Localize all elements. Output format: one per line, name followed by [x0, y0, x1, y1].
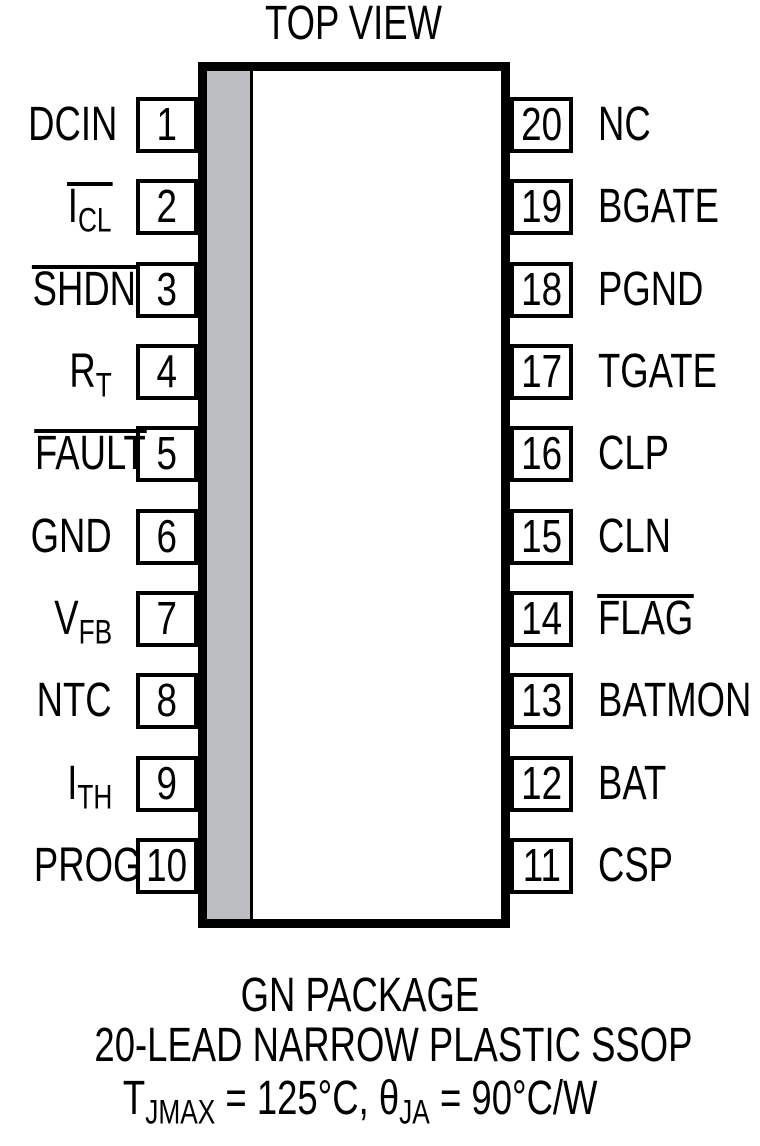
pin-15-number-box: 15 — [510, 509, 573, 565]
pin-20-label-text: NC — [598, 97, 651, 153]
pin-4-signal-name: RT — [70, 345, 112, 398]
pin-9-number: 9 — [157, 760, 177, 807]
pin-16-label-text: CLP — [598, 426, 669, 482]
pin-14-label: FLAG — [598, 591, 759, 647]
pin-17-signal-name: TGATE — [598, 345, 717, 398]
pinout-diagram: TOP VIEW 1DCIN2ICL3SHDN4RT5FAULT6GND7VFB… — [0, 0, 760, 1146]
pin-8-base-text: NTC — [37, 674, 112, 727]
pin-12-number-box: 12 — [510, 756, 573, 812]
pin-14-number: 14 — [521, 595, 562, 642]
pin-8-label-text: NTC — [37, 673, 112, 729]
pin-7-number: 7 — [157, 595, 177, 642]
pin-11-number-box: 11 — [510, 838, 573, 894]
pin-11-label-text: CSP — [598, 838, 673, 894]
pin-12-label-text: BAT — [598, 756, 666, 812]
caption-text-segment: T — [123, 1072, 145, 1125]
pin-16-number-box: 16 — [510, 426, 573, 482]
pin-5-signal-name: FAULT — [35, 426, 146, 482]
pin-5-label: FAULT — [0, 426, 112, 482]
caption-subscript: JA — [399, 1093, 430, 1131]
chip-package-body — [198, 62, 510, 928]
pin-20-base-text: NC — [598, 98, 651, 151]
pin-11-base-text: CSP — [598, 839, 673, 892]
pin-17-label-text: TGATE — [598, 344, 717, 400]
pin-14-label-text: FLAG — [598, 591, 693, 647]
pin-18-signal-name: PGND — [598, 263, 703, 316]
pin-3-label: SHDN — [0, 262, 112, 318]
pin-20-number-box: 20 — [510, 97, 573, 153]
pin-9-base-text: I — [67, 757, 77, 810]
pin-19-number-box: 19 — [510, 179, 573, 235]
pin-8-signal-name: NTC — [37, 674, 112, 727]
pin-11-label: CSP — [598, 838, 759, 894]
pin-3-label-text: SHDN — [33, 262, 136, 318]
pin-2-signal-name: ICL — [68, 179, 112, 248]
pin-20-number: 20 — [521, 101, 562, 148]
pin-15-label-text: CLN — [598, 509, 671, 565]
pin-14-signal-name: FLAG — [598, 591, 693, 647]
top-view-label-text: TOP VIEW — [264, 0, 441, 50]
pin-7-number-box: 7 — [136, 591, 198, 647]
pin-6-base-text: GND — [31, 510, 112, 563]
pin-4-base-text: R — [70, 345, 96, 398]
pin-1-label-text: DCIN — [28, 97, 117, 153]
pin-3-number-box: 3 — [136, 262, 198, 318]
pin-18-number: 18 — [521, 266, 562, 313]
pin-5-label-text: FAULT — [35, 426, 146, 482]
pin-8-label: NTC — [0, 673, 112, 729]
pin-19-label: BGATE — [598, 179, 759, 235]
pin-10-number: 10 — [147, 842, 188, 889]
pin-15-label: CLN — [598, 509, 759, 565]
pin-7-label-text: VFB — [54, 591, 112, 660]
pin-3-base-text: SHDN — [33, 263, 136, 316]
pin-10-label: PROG — [0, 838, 112, 894]
pin-16-number: 16 — [521, 430, 562, 477]
pin-9-number-box: 9 — [136, 756, 198, 812]
pin-11-number: 11 — [522, 842, 560, 889]
pin-7-base-text: V — [54, 592, 78, 645]
pin-7-label: VFB — [0, 591, 112, 647]
pin-4-label-text: RT — [70, 344, 112, 413]
pin-16-label: CLP — [598, 426, 759, 482]
caption-subscript: JMAX — [145, 1093, 215, 1131]
pin-9-label: ITH — [0, 756, 112, 812]
pin-20-signal-name: NC — [598, 98, 651, 151]
caption-text-segment: = 125°C, θ — [215, 1072, 399, 1125]
pin-13-label-text: BATMON — [598, 673, 751, 729]
pin-13-signal-name: BATMON — [598, 674, 751, 727]
pin-15-signal-name: CLN — [598, 510, 671, 563]
pin-2-subscript: CL — [78, 201, 112, 239]
pin-2-label-text: ICL — [68, 179, 112, 248]
pin-6-number-box: 6 — [136, 509, 198, 565]
pin-10-base-text: PROG — [34, 839, 141, 892]
pin-11-signal-name: CSP — [598, 839, 673, 892]
pin-14-number-box: 14 — [510, 591, 573, 647]
pin-13-base-text: BATMON — [598, 674, 751, 727]
pin-18-label-text: PGND — [598, 262, 703, 318]
pin-5-base-text: FAULT — [35, 427, 146, 480]
pin-20-label: NC — [598, 97, 759, 153]
pin-2-number: 2 — [157, 183, 177, 230]
pin-13-number-box: 13 — [510, 673, 573, 729]
pin-13-number: 13 — [521, 677, 562, 724]
pin-1-number: 1 — [157, 101, 177, 148]
pin-10-label-text: PROG — [34, 838, 141, 894]
pin-1-signal-name: DCIN — [28, 98, 117, 151]
pin-15-number: 15 — [521, 513, 562, 560]
package-type-caption: 20-LEAD NARROW PLASTIC SSOP — [0, 1020, 720, 1072]
pin-7-signal-name: VFB — [54, 592, 112, 645]
pin-17-number: 17 — [521, 348, 562, 395]
thermal-spec-caption: TJMAX = 125°C, θJA = 90°C/W — [0, 1073, 720, 1138]
pin-6-signal-name: GND — [31, 510, 112, 563]
pin-19-number: 19 — [521, 183, 562, 230]
package-name-caption: GN PACKAGE — [0, 970, 720, 1022]
pin-6-label: GND — [0, 509, 112, 565]
pin-15-base-text: CLN — [598, 510, 671, 563]
pin-7-subscript: FB — [78, 613, 112, 651]
pin-19-label-text: BGATE — [598, 179, 719, 235]
pin-12-signal-name: BAT — [598, 757, 666, 810]
pin-14-base-text: FLAG — [598, 592, 693, 645]
pin-6-number: 6 — [157, 513, 177, 560]
pin-3-number: 3 — [157, 266, 177, 313]
pin1-side-stripe — [207, 71, 253, 919]
pin-8-number: 8 — [157, 677, 177, 724]
pin-17-number-box: 17 — [510, 344, 573, 400]
top-view-label: TOP VIEW — [0, 0, 706, 50]
pin-4-number: 4 — [157, 348, 177, 395]
pin-2-label: ICL — [0, 179, 112, 235]
pin-6-label-text: GND — [31, 509, 112, 565]
pin-12-number: 12 — [521, 760, 562, 807]
thermal-spec-text: TJMAX = 125°C, θJA = 90°C/W — [123, 1073, 598, 1138]
pin-12-label: BAT — [598, 756, 759, 812]
pin-1-label: DCIN — [0, 97, 112, 153]
pin-17-label: TGATE — [598, 344, 759, 400]
pin-19-base-text: BGATE — [598, 180, 719, 233]
pin-8-number-box: 8 — [136, 673, 198, 729]
pin-3-signal-name: SHDN — [33, 262, 136, 318]
pin-10-signal-name: PROG — [34, 839, 141, 892]
pin-17-base-text: TGATE — [598, 345, 717, 398]
pin-18-label: PGND — [598, 262, 759, 318]
pin-9-subscript: TH — [77, 778, 112, 816]
pin-4-number-box: 4 — [136, 344, 198, 400]
pin-5-number: 5 — [157, 430, 177, 477]
caption-text-segment: = 90°C/W — [430, 1072, 598, 1125]
pin-9-label-text: ITH — [67, 756, 112, 825]
pin-16-signal-name: CLP — [598, 427, 669, 480]
pin-18-number-box: 18 — [510, 262, 573, 318]
pin-9-signal-name: ITH — [67, 757, 112, 810]
package-type-text: 20-LEAD NARROW PLASTIC SSOP — [94, 1020, 692, 1072]
pin-2-number-box: 2 — [136, 179, 198, 235]
pin-16-base-text: CLP — [598, 427, 669, 480]
pin-4-subscript: T — [96, 366, 112, 404]
pin-12-base-text: BAT — [598, 757, 666, 810]
pin-19-signal-name: BGATE — [598, 180, 719, 233]
pin-10-number-box: 10 — [136, 838, 198, 894]
pin-1-number-box: 1 — [136, 97, 198, 153]
package-name-text: GN PACKAGE — [241, 970, 480, 1022]
pin-18-base-text: PGND — [598, 263, 703, 316]
pin-4-label: RT — [0, 344, 112, 400]
pin-13-label: BATMON — [598, 673, 759, 729]
pin-1-base-text: DCIN — [28, 98, 117, 151]
